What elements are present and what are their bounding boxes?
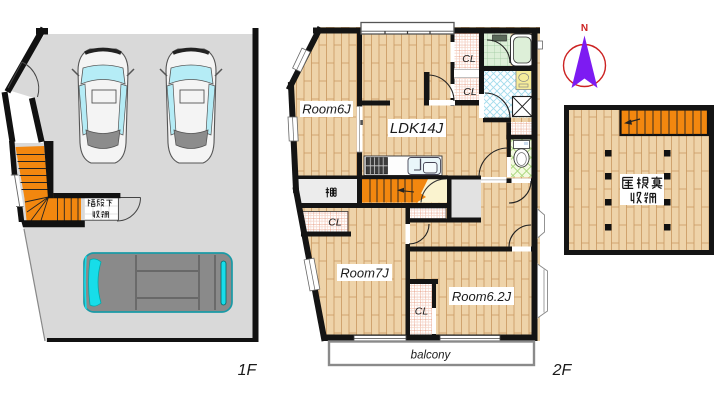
svg-text:1F: 1F [238, 362, 258, 379]
svg-text:CL: CL [462, 53, 476, 65]
svg-text:Room7J: Room7J [340, 266, 389, 281]
svg-text:N: N [581, 23, 588, 34]
svg-text:CL: CL [415, 306, 429, 318]
svg-text:CL: CL [463, 86, 477, 98]
svg-text:balcony: balcony [411, 350, 452, 362]
svg-text:Room6J: Room6J [302, 102, 351, 117]
svg-text:Room6.2J: Room6.2J [452, 289, 512, 304]
svg-text:LDK14J: LDK14J [390, 120, 444, 137]
svg-text:CL: CL [328, 217, 342, 229]
svg-text:2F: 2F [552, 362, 573, 379]
